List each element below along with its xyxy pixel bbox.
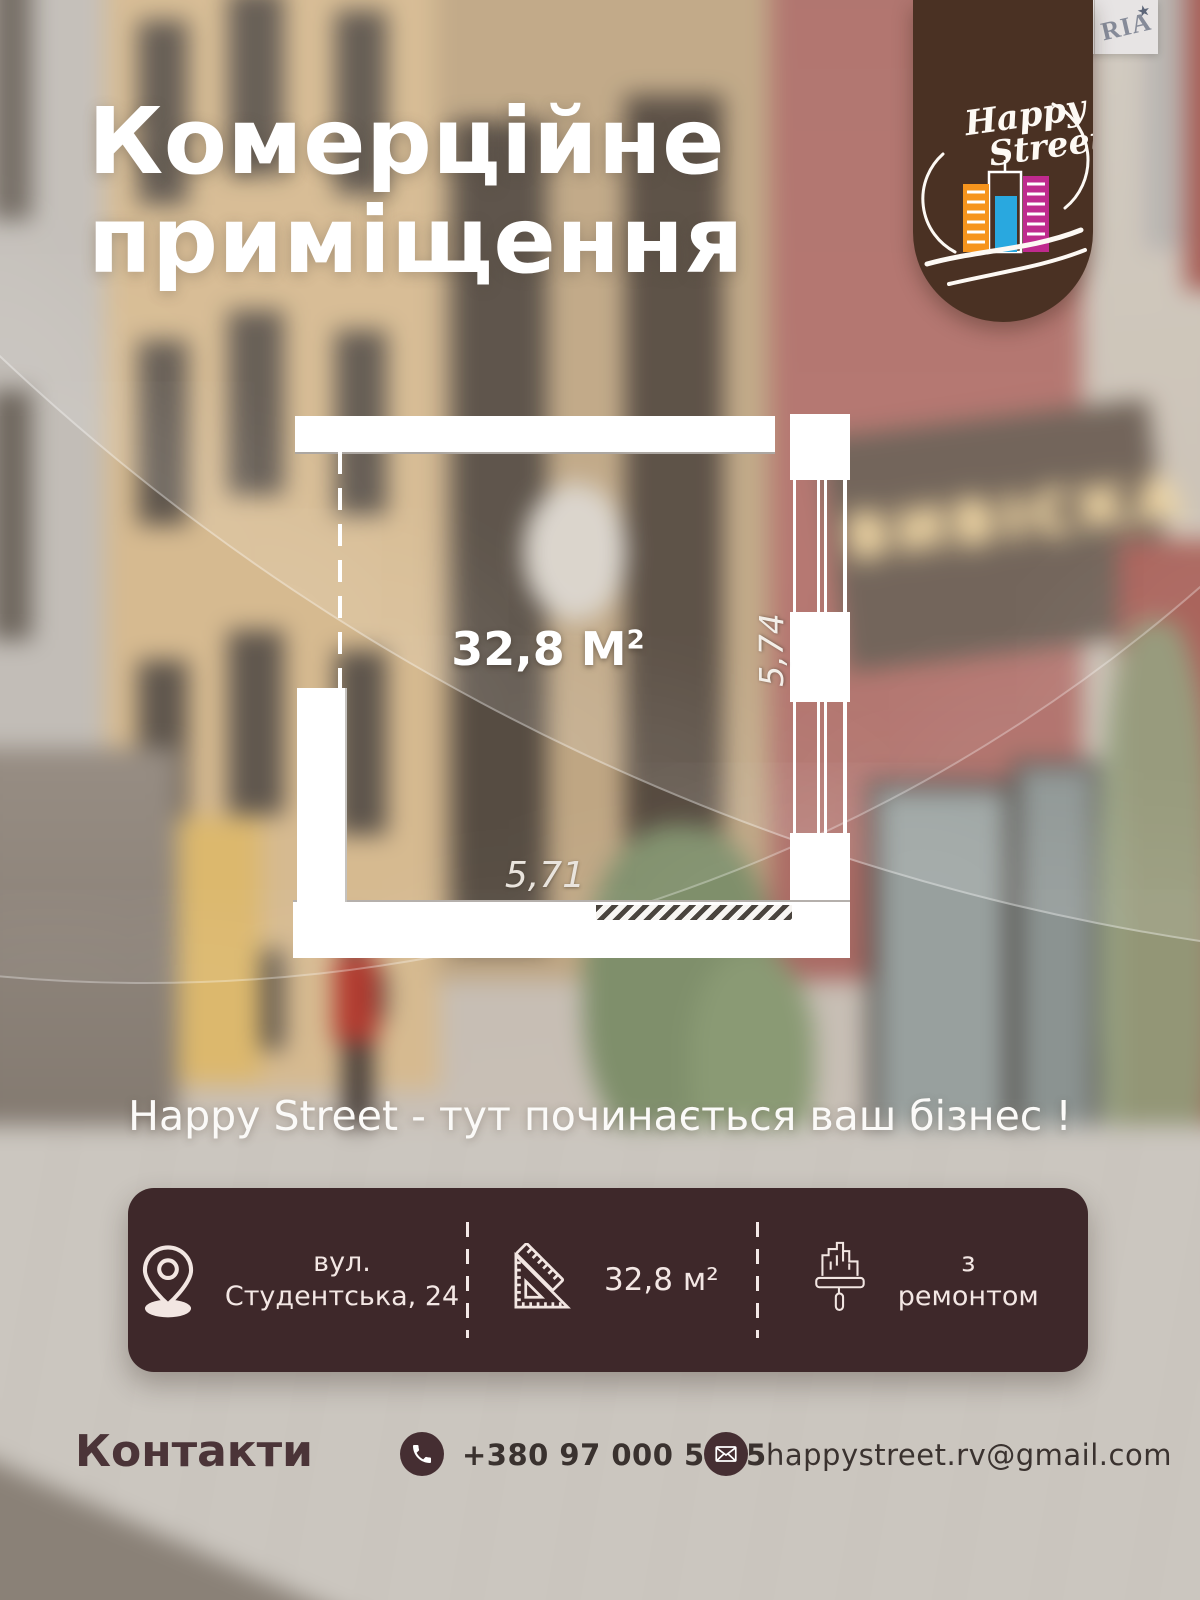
contacts-heading: Контакти: [75, 1426, 313, 1477]
info-condition: з ремонтом: [759, 1188, 1088, 1372]
bg-pedestrian: [334, 952, 378, 1046]
bg-yellow-wall: [165, 818, 261, 1080]
buildings-icon: [963, 160, 1049, 252]
info-location: вул. Студентська, 24: [128, 1188, 466, 1372]
paint-roller-icon: [808, 1238, 874, 1322]
title-line-2: приміщення: [88, 191, 744, 290]
plan-dim-right: 5,74: [752, 590, 792, 710]
set-square-icon: [506, 1243, 580, 1317]
plan-opening-dashed-line: [338, 452, 342, 690]
bg-topright-red: [1185, 0, 1200, 290]
bg-clock-circle: [523, 483, 627, 621]
tagline: Happy Street - тут починається ваш бізне…: [0, 1092, 1200, 1140]
plan-wall-corner-top-right: [790, 414, 850, 480]
logo-arc-left: [923, 154, 955, 252]
email-badge: [704, 1432, 748, 1476]
plan-dim-bottom: 5,71: [480, 855, 610, 896]
plan-entrance-hatch: [596, 905, 792, 920]
happy-street-badge: Happy Street: [913, 0, 1093, 322]
title-line-1: Комерційне: [88, 92, 744, 191]
plan-wall-left: [297, 688, 347, 902]
email-address: happystreet.rv@gmail.com: [766, 1438, 1172, 1472]
plan-area-label: 32,8 М2: [428, 622, 668, 676]
location-text: вул. Студентська, 24: [225, 1246, 459, 1314]
ria-logo: ★ RIA: [1095, 0, 1158, 54]
info-bar: вул. Студентська, 24 32,8 м²: [128, 1188, 1088, 1372]
location-pin-icon: [135, 1242, 201, 1318]
info-area: 32,8 м²: [469, 1188, 755, 1372]
phone-icon: [410, 1442, 434, 1466]
plan-wall-corner-bottom-right: [790, 833, 850, 902]
bg-building-left-windows: [0, 0, 32, 830]
plan-wall-pier: [790, 612, 850, 702]
plan-window-upper: [790, 478, 850, 614]
happy-street-logo: Happy Street: [913, 52, 1093, 312]
condition-text: з ремонтом: [898, 1246, 1039, 1314]
ria-logo-text: RIA: [1098, 7, 1154, 48]
email-icon: [713, 1441, 739, 1467]
plan-wall-top: [295, 416, 775, 454]
area-value: 32,8 м²: [604, 1263, 719, 1297]
poster-canvas: ВИВІСКА Комерційне приміщення dim ★ RIA: [0, 0, 1200, 1600]
page-title: Комерційне приміщення: [88, 92, 744, 290]
plan-window-lower: [790, 700, 850, 835]
phone-badge: [400, 1432, 444, 1476]
